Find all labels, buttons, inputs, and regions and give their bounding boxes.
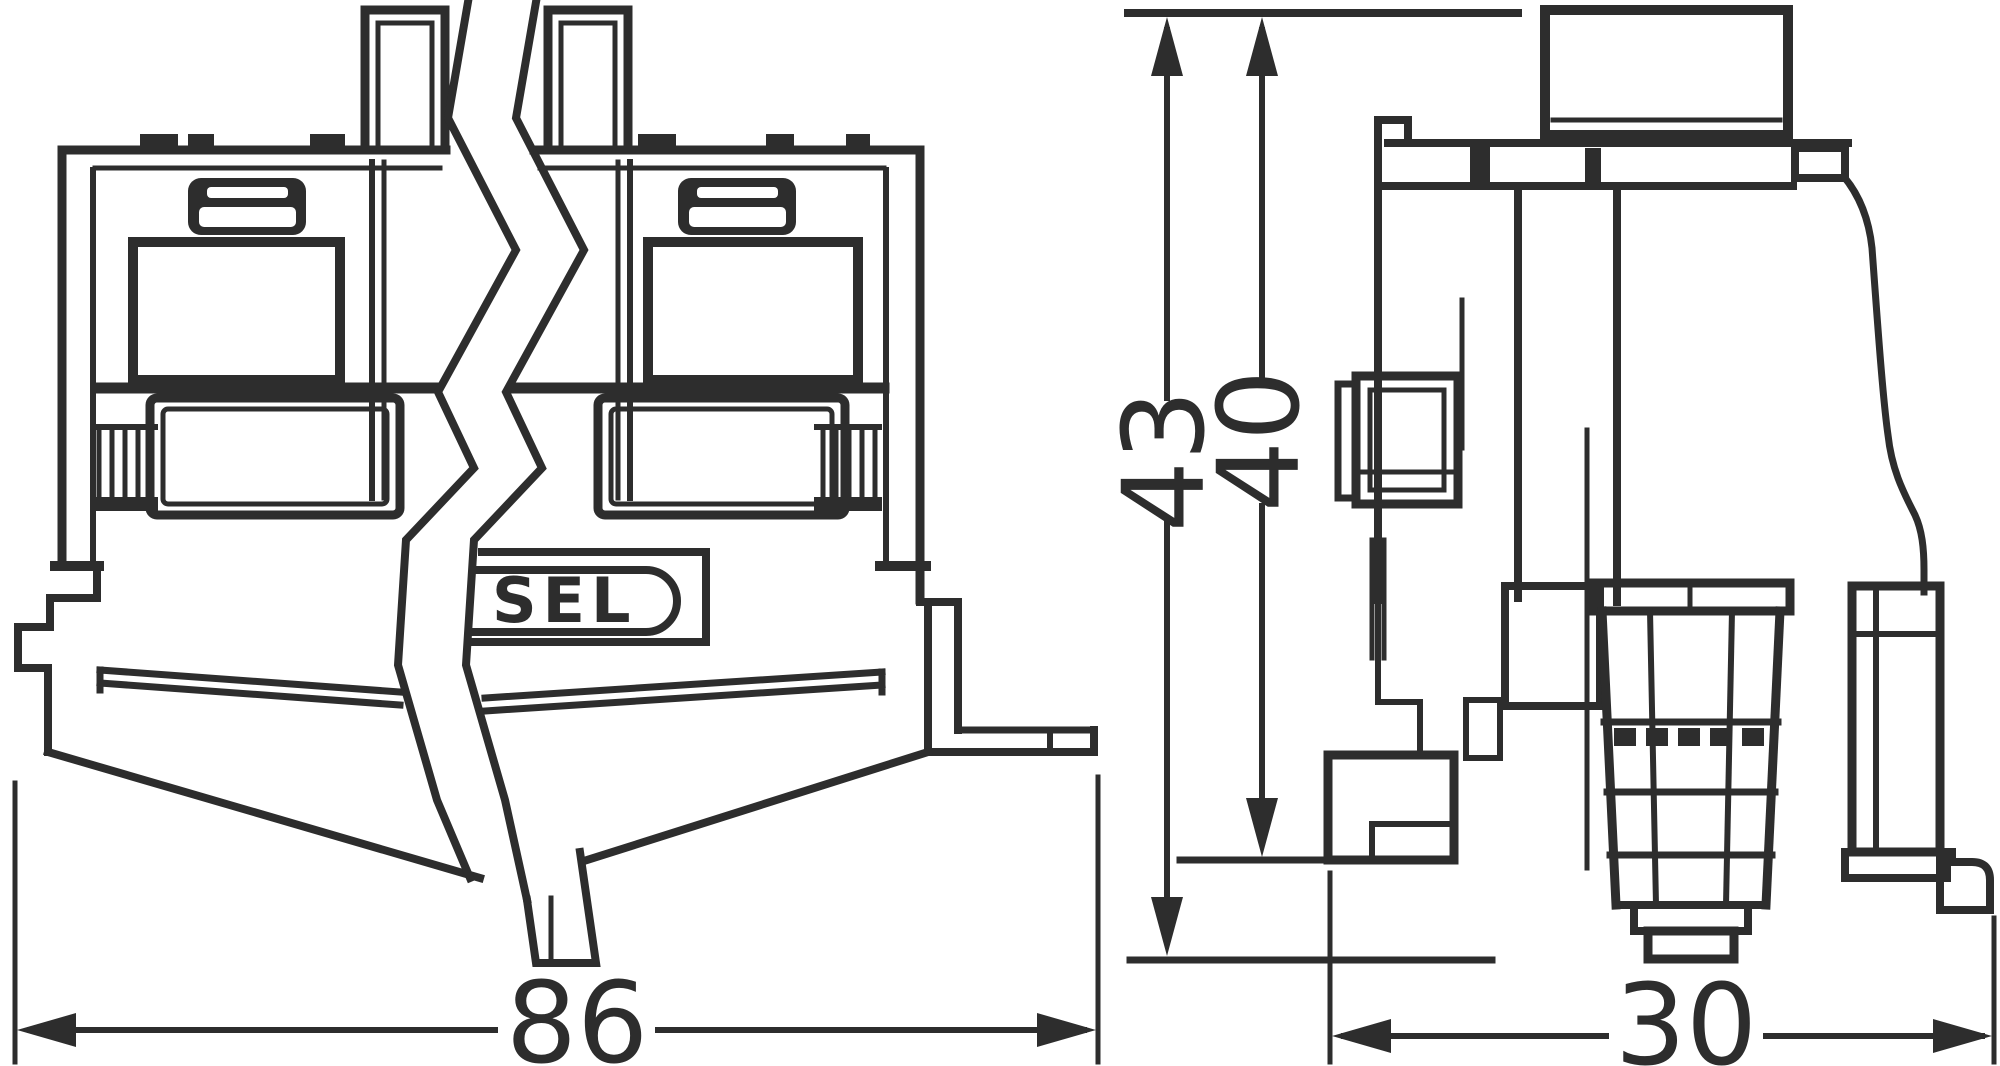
screw-slot-right (678, 178, 796, 235)
cage-pad-lower (1648, 931, 1734, 959)
dimension-width-86: 86 (15, 777, 1098, 1066)
tooth (1678, 728, 1700, 746)
side-view (1328, 10, 1990, 959)
tab-step (920, 602, 958, 752)
cage-inner-right (1726, 611, 1732, 905)
tab (140, 134, 178, 151)
bracket-outline (1852, 586, 1940, 852)
right-bracket (1845, 586, 1990, 910)
bracket-pad (1845, 852, 1947, 878)
spring-hatch-right (814, 427, 882, 511)
lower-window-right-inner (611, 409, 832, 504)
hatch-cap-bottom (814, 497, 882, 511)
tab (766, 134, 794, 151)
top-block (1545, 10, 1788, 135)
drawing-canvas: SEL (0, 0, 2000, 1066)
cage-side-left (1602, 611, 1616, 905)
hatch-cap-bottom (90, 497, 158, 511)
tooth (1742, 728, 1764, 746)
din-tab-right (920, 602, 1094, 752)
dim-value-86: 86 (506, 959, 649, 1066)
bottom-slope-right (584, 752, 928, 861)
arrowhead-up (1246, 17, 1278, 76)
mid-block-small (1466, 700, 1500, 758)
base-plate-left (100, 670, 400, 705)
arrowhead-down (1151, 897, 1183, 956)
lower-window-left-inner (163, 409, 387, 504)
busbar-right-inner (561, 23, 615, 148)
bottom-slope-left (48, 752, 480, 878)
busbar-left-inner (378, 23, 432, 148)
break-lines (398, 2, 584, 900)
tooth (1646, 728, 1668, 746)
hatch-stripe (99, 432, 151, 497)
front-view: SEL (18, 2, 1094, 963)
screw-slot-left (188, 178, 306, 235)
block-notch (1372, 824, 1454, 860)
plate-divider (1585, 148, 1601, 184)
tooth (1710, 728, 1732, 746)
busbar-stubs (365, 10, 628, 150)
tab (188, 134, 214, 151)
clamp-cage (1592, 583, 1790, 959)
bracket-inner (1852, 586, 1940, 852)
screw-slot-lower (689, 207, 786, 227)
center-foot (527, 852, 596, 963)
break-line-right (466, 2, 584, 900)
brand-label: SEL (470, 552, 706, 642)
tab (310, 134, 345, 151)
upper-window-left (133, 242, 340, 380)
flange-steps-left (18, 570, 97, 752)
terminal-box (1338, 376, 1458, 658)
screw-slot-upper (697, 187, 778, 198)
break-line-left (398, 2, 516, 878)
arrowhead-right (1037, 1013, 1096, 1047)
screw-slot-upper (207, 187, 288, 198)
base-plate-right (485, 672, 882, 711)
arrowhead-left (17, 1013, 76, 1047)
dimension-drawing: SEL (0, 0, 2000, 1066)
tab (638, 134, 676, 151)
arrowhead-left (1332, 1019, 1391, 1053)
lower-left-block (1328, 755, 1454, 860)
dimension-height-40: 40 (1180, 17, 1332, 860)
screw-slot-lower (199, 207, 296, 227)
arrowhead-down (1246, 798, 1278, 857)
tooth (1614, 728, 1636, 746)
dim-value-30: 30 (1615, 961, 1758, 1066)
dim-value-40: 40 (1195, 370, 1325, 513)
cage-inner-left (1650, 611, 1656, 905)
block-outline (1328, 755, 1454, 860)
cage-teeth (1614, 728, 1764, 746)
tab (846, 134, 870, 151)
hook (1795, 148, 1845, 178)
arrowhead-right (1933, 1019, 1992, 1053)
lower-window-right-outer (598, 398, 845, 515)
arrowhead-up (1151, 17, 1183, 76)
curve-edge (1845, 178, 1924, 592)
right-silhouette (1795, 148, 1924, 592)
plate-divider (1470, 147, 1490, 187)
upper-window-right (648, 242, 858, 380)
foot-outline (527, 852, 596, 963)
lower-window-left-outer (150, 398, 400, 515)
cage-side-right (1766, 611, 1780, 905)
brand-text: SEL (492, 564, 637, 637)
